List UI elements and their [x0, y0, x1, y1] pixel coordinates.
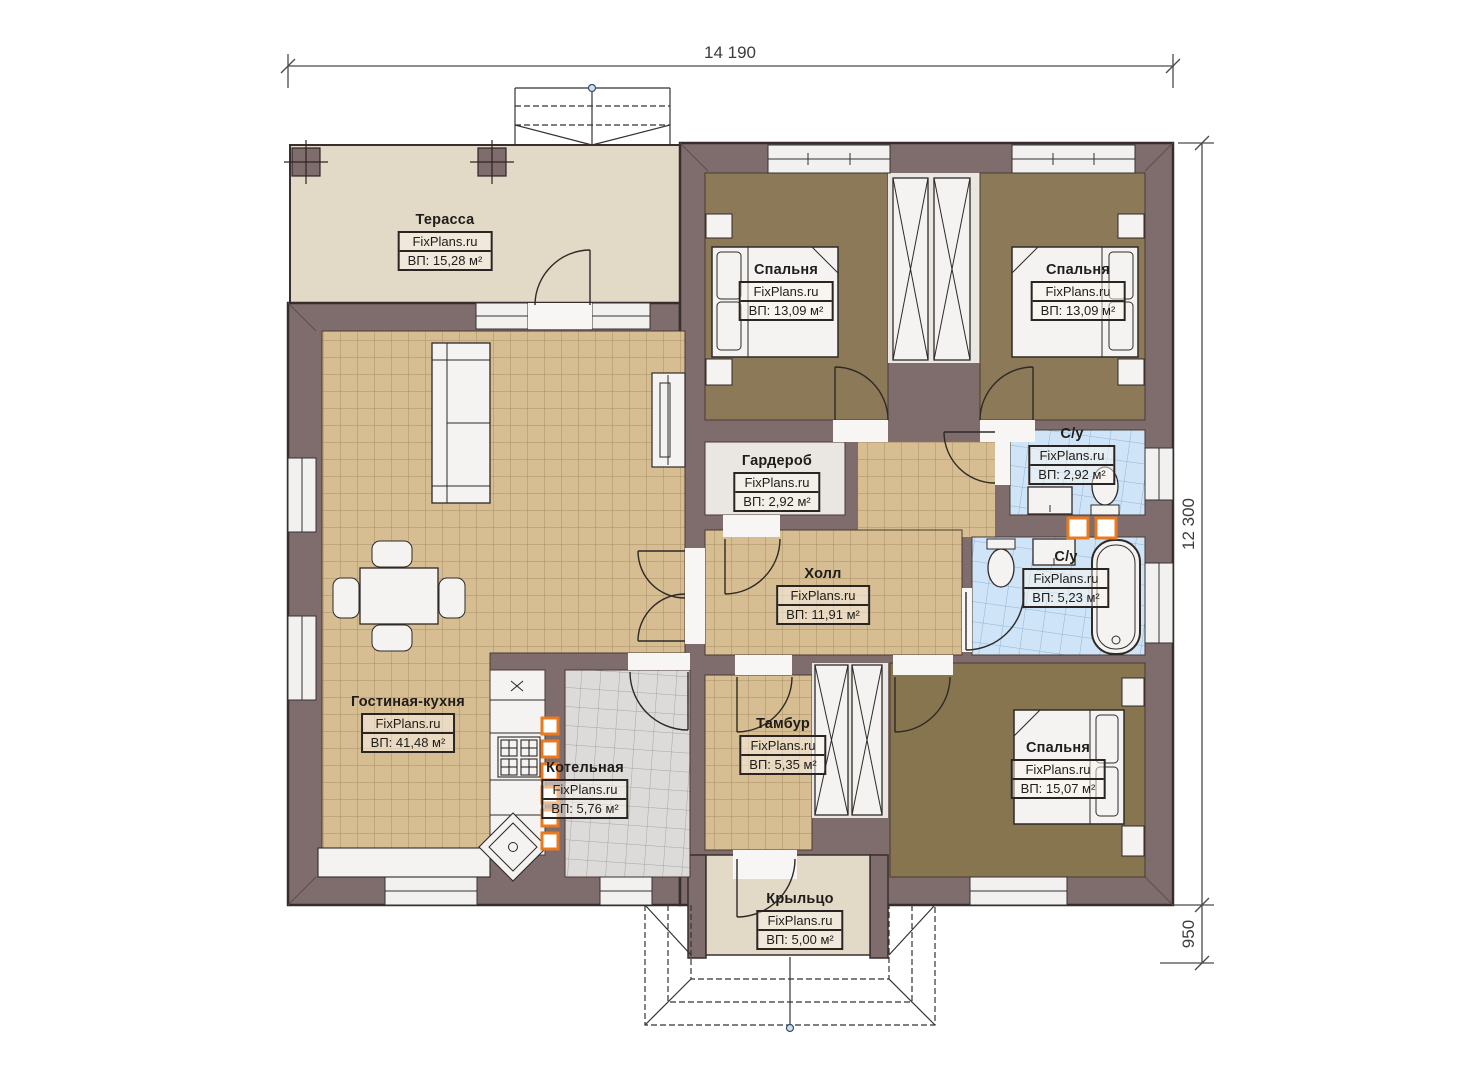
- room-area: ВП: 15,07 м²: [1013, 780, 1104, 797]
- room-name: Холл: [776, 566, 870, 582]
- dimension-top: 14 190: [281, 43, 1180, 88]
- room-area: ВП: 5,35 м²: [741, 756, 824, 773]
- window: [600, 877, 652, 905]
- watermark-brand: FixPlans.ru: [758, 912, 841, 931]
- floor-plan-page: 14 190 12 300 950: [0, 0, 1473, 1080]
- room-label-bedroom-3: Спальня FixPlans.ru ВП: 15,07 м²: [1011, 740, 1106, 799]
- watermark-brand: FixPlans.ru: [1013, 761, 1104, 780]
- counter-bottom: [318, 848, 490, 877]
- room-name: Терасса: [398, 212, 493, 228]
- watermark-brand: FixPlans.ru: [778, 587, 868, 606]
- porch-wall-right: [870, 855, 888, 958]
- watermark-brand: FixPlans.ru: [741, 283, 832, 302]
- watermark-brand: FixPlans.ru: [1024, 570, 1107, 589]
- room-area: ВП: 5,00 м²: [758, 931, 841, 948]
- window: [1145, 563, 1173, 643]
- room-area: ВП: 41,48 м²: [363, 734, 454, 751]
- terrace-steps: [515, 85, 670, 146]
- room-name: Спальня: [1011, 740, 1106, 756]
- room-area: ВП: 2,92 м²: [735, 493, 818, 510]
- cooktop-icon: [498, 737, 540, 777]
- room-area: ВП: 2,92 м²: [1030, 466, 1113, 483]
- window: [970, 877, 1067, 905]
- room-area: ВП: 11,91 м²: [778, 606, 868, 623]
- terrace-sidelight: [476, 303, 528, 329]
- window: [1145, 448, 1173, 500]
- room-label-boiler-room: Котельная FixPlans.ru ВП: 5,76 м²: [541, 760, 628, 819]
- room-area: ВП: 13,09 м²: [1033, 302, 1124, 319]
- watermark-brand: FixPlans.ru: [741, 737, 824, 756]
- room-label-vestibule: Тамбур FixPlans.ru ВП: 5,35 м²: [739, 716, 826, 775]
- corridor-floor: [858, 442, 995, 537]
- room-name: Гостиная-кухня: [351, 694, 465, 710]
- window: [385, 877, 477, 905]
- sofa: [432, 343, 490, 503]
- dimension-porch-label: 950: [1179, 920, 1198, 948]
- room-label-living-kitchen: Гостиная-кухня FixPlans.ru ВП: 41,48 м²: [351, 694, 465, 753]
- room-name: С/у: [1022, 549, 1109, 565]
- room-label-bathroom-big: С/у FixPlans.ru ВП: 5,23 м²: [1022, 549, 1109, 608]
- room-name: Котельная: [541, 760, 628, 776]
- room-area: ВП: 5,76 м²: [543, 800, 626, 817]
- room-area: ВП: 5,23 м²: [1024, 589, 1107, 606]
- room-label-bedroom-1: Спальня FixPlans.ru ВП: 13,09 м²: [739, 262, 834, 321]
- room-label-porch: Крыльцо FixPlans.ru ВП: 5,00 м²: [756, 891, 843, 950]
- room-label-bathroom-small: С/у FixPlans.ru ВП: 2,92 м²: [1028, 426, 1115, 485]
- floor-plan-drawing: 14 190 12 300 950: [0, 0, 1473, 1080]
- window: [768, 145, 890, 173]
- toilet-icon: [987, 539, 1015, 587]
- cabinet: [652, 373, 685, 467]
- room-label-hall: Холл FixPlans.ru ВП: 11,91 м²: [776, 566, 870, 625]
- window: [1012, 145, 1135, 173]
- room-area: ВП: 13,09 м²: [741, 302, 832, 319]
- watermark-brand: FixPlans.ru: [400, 233, 491, 252]
- watermark-brand: FixPlans.ru: [543, 781, 626, 800]
- room-label-terrace: Терасса FixPlans.ru ВП: 15,28 м²: [398, 212, 493, 271]
- watermark-brand: FixPlans.ru: [735, 474, 818, 493]
- room-name: Гардероб: [733, 453, 820, 469]
- watermark-brand: FixPlans.ru: [1030, 447, 1113, 466]
- watermark-brand: FixPlans.ru: [1033, 283, 1124, 302]
- room-label-bedroom-2: Спальня FixPlans.ru ВП: 13,09 м²: [1031, 262, 1126, 321]
- room-area: ВП: 15,28 м²: [400, 252, 491, 269]
- room-name: Крыльцо: [756, 891, 843, 907]
- dimension-height-label: 12 300: [1179, 498, 1198, 550]
- watermark-brand: FixPlans.ru: [363, 715, 454, 734]
- window: [288, 616, 316, 700]
- sink-icon: [1028, 487, 1072, 514]
- room-name: Тамбур: [739, 716, 826, 732]
- window: [288, 458, 316, 532]
- terrace-sidelight: [592, 303, 650, 329]
- room-label-wardrobe: Гардероб FixPlans.ru ВП: 2,92 м²: [733, 453, 820, 512]
- room-name: С/у: [1028, 426, 1115, 442]
- dimension-width-label: 14 190: [704, 43, 756, 62]
- room-name: Спальня: [1031, 262, 1126, 278]
- room-name: Спальня: [739, 262, 834, 278]
